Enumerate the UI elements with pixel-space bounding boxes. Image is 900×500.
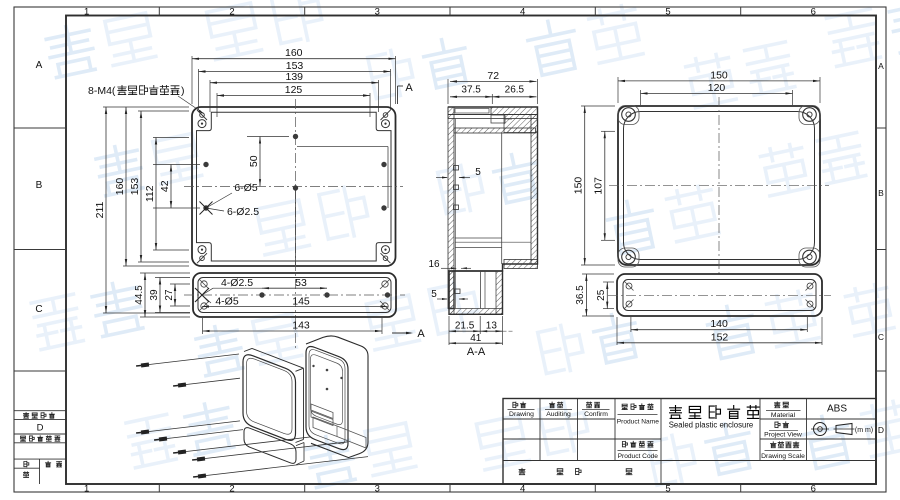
svg-text:44.5: 44.5 [134, 285, 145, 305]
svg-text:A: A [36, 60, 43, 71]
svg-text:1: 1 [84, 483, 89, 494]
svg-text:4-Ø2.5: 4-Ø2.5 [221, 277, 253, 289]
svg-text:50: 50 [248, 155, 260, 167]
svg-text:107: 107 [593, 177, 605, 195]
svg-text:143: 143 [292, 320, 310, 332]
svg-text:A-A: A-A [467, 346, 486, 358]
svg-text:): ) [181, 85, 185, 97]
svg-text:41: 41 [470, 333, 482, 344]
svg-text:5: 5 [431, 289, 437, 300]
svg-text:2: 2 [229, 483, 234, 494]
svg-text:112: 112 [144, 185, 156, 202]
svg-text:145: 145 [292, 296, 310, 308]
svg-text:5: 5 [475, 167, 481, 178]
svg-text:C: C [878, 332, 884, 342]
svg-text:25: 25 [596, 289, 607, 301]
svg-text:6: 6 [811, 7, 816, 18]
svg-text:120: 120 [708, 82, 726, 94]
svg-text:39: 39 [149, 289, 160, 301]
svg-text:8-M4(: 8-M4( [88, 85, 116, 97]
svg-text:3: 3 [375, 7, 380, 18]
svg-text:4-Ø5: 4-Ø5 [215, 296, 239, 308]
svg-text:A: A [417, 328, 425, 340]
svg-text:3: 3 [375, 483, 380, 494]
svg-text:5: 5 [665, 7, 670, 18]
svg-text:B: B [36, 180, 43, 191]
svg-text:36.5: 36.5 [575, 285, 586, 305]
svg-text:D: D [878, 425, 884, 435]
svg-text:A: A [405, 82, 413, 94]
svg-text:6-Ø2.5: 6-Ø2.5 [227, 206, 259, 218]
svg-text:Project View: Project View [764, 431, 802, 438]
svg-text:Product Code: Product Code [618, 453, 659, 460]
svg-text:140: 140 [710, 318, 728, 330]
svg-text:53: 53 [295, 277, 307, 289]
svg-text:Material: Material [771, 412, 796, 419]
svg-text:6: 6 [811, 483, 816, 494]
svg-text:5: 5 [665, 483, 670, 494]
svg-text:27: 27 [164, 289, 175, 301]
svg-text:42: 42 [159, 180, 171, 192]
svg-text:Confirm: Confirm [584, 411, 608, 418]
svg-text:6-Ø5: 6-Ø5 [234, 182, 258, 194]
svg-text:Drawing: Drawing [509, 411, 534, 418]
svg-text:72: 72 [487, 70, 499, 82]
svg-text:152: 152 [711, 331, 729, 343]
svg-text:160: 160 [285, 47, 303, 59]
svg-text:B: B [878, 188, 884, 198]
svg-text:13: 13 [486, 321, 498, 332]
svg-text:2: 2 [229, 7, 234, 18]
svg-text:ABS: ABS [827, 404, 847, 415]
svg-text:D: D [37, 423, 44, 434]
svg-text:Auditing: Auditing [546, 411, 571, 418]
svg-text:C: C [35, 304, 42, 315]
svg-text:37.5: 37.5 [461, 85, 481, 96]
svg-text:211: 211 [94, 201, 106, 218]
svg-text:150: 150 [573, 177, 585, 195]
svg-text:26.5: 26.5 [505, 85, 525, 96]
svg-text:153: 153 [286, 60, 304, 72]
svg-text:4: 4 [520, 483, 525, 494]
svg-text:Product Name: Product Name [617, 418, 659, 425]
svg-text:A: A [878, 61, 884, 71]
svg-text:Sealed plastic enclosure: Sealed plastic enclosure [669, 420, 754, 429]
svg-text:153: 153 [129, 178, 141, 196]
svg-text:139: 139 [285, 71, 303, 83]
svg-text:160: 160 [114, 178, 126, 196]
svg-text:1: 1 [84, 7, 89, 18]
svg-text:Drawing Scale: Drawing Scale [761, 453, 805, 460]
svg-text:(m m): (m m) [855, 427, 873, 434]
svg-text:21.5: 21.5 [455, 321, 475, 332]
svg-text:16: 16 [428, 259, 440, 270]
svg-text:125: 125 [285, 84, 303, 96]
svg-text:4: 4 [520, 7, 525, 18]
svg-text:150: 150 [710, 69, 728, 81]
